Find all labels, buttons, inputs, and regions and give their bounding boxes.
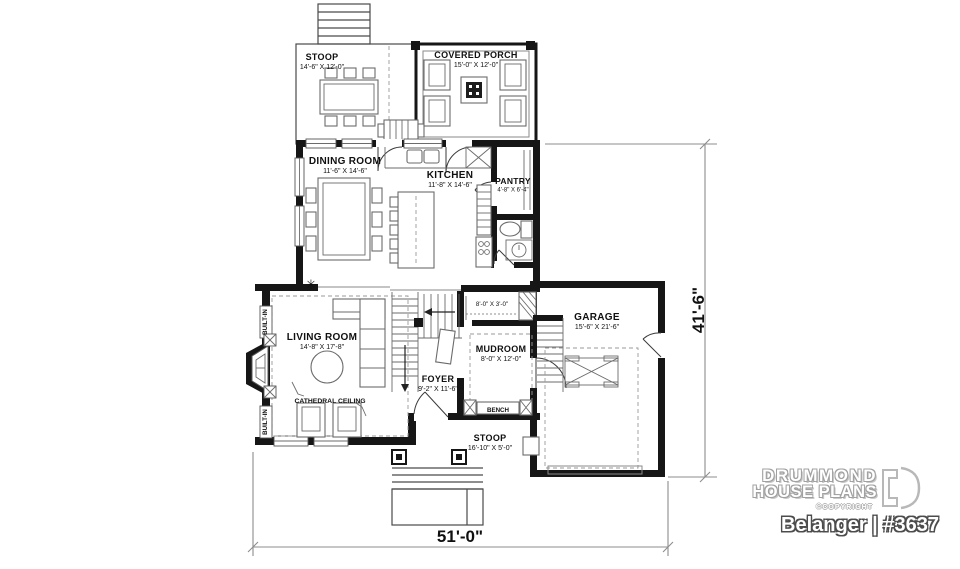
bbq-grill — [378, 120, 424, 141]
staircase-main — [392, 292, 418, 392]
side-door-step — [523, 437, 539, 455]
label-mudroom-dims: 8'-0" X 12'-0" — [481, 356, 522, 363]
stoop-posts — [392, 450, 466, 464]
porch-post — [526, 41, 535, 50]
plan-title: Belanger | #3637 — [762, 514, 958, 537]
label-bench: BENCH — [487, 407, 510, 414]
kitchen-island — [390, 192, 434, 268]
label-pantry: PANTRY — [495, 176, 531, 186]
label-dining-room: DINING ROOM — [309, 156, 381, 167]
label-living-room-dims: 14'-8" X 17'-8" — [300, 344, 345, 351]
stoop-steps — [392, 468, 483, 525]
kitchen-counter — [385, 147, 491, 168]
kitchen-sink — [424, 150, 439, 163]
label-stoop-top-dims: 14'-6" X 12'-0" — [300, 64, 345, 71]
label-covered-porch-dims: 15'-0" X 12'-0" — [454, 62, 499, 69]
label-garage-dims: 15'-6" X 21'-6" — [575, 324, 620, 331]
label-stoop-bottom-dims: 16'-10" X 5'-0" — [468, 445, 513, 452]
round-ottoman — [311, 351, 343, 383]
label-closet-dims: 8'-0" X 3'-0" — [476, 301, 508, 308]
label-foyer-dims: 9'-2" X 11'-6" — [418, 386, 458, 393]
brand-copyright: ©COPYRIGHT — [750, 504, 873, 511]
label-stoop-bottom: STOOP — [474, 433, 507, 443]
label-kitchen-dims: 11'-8" X 14'-6" — [428, 182, 472, 189]
vanity-sink — [506, 240, 532, 260]
console-table — [436, 329, 455, 364]
range-stove — [476, 237, 492, 267]
dimension-width: 51'-0" — [437, 527, 483, 546]
label-built-in-bottom: BUILT-IN — [262, 409, 269, 435]
label-pantry-dims: 4'-8" X 6'-4" — [497, 188, 528, 194]
label-cathedral-ceiling: CATHEDRAL CEILING — [294, 398, 365, 405]
armchairs — [297, 403, 361, 437]
attic-ladder — [565, 356, 618, 387]
kitchen-sink — [407, 150, 422, 163]
dining-table — [306, 178, 382, 260]
fireplace — [246, 334, 276, 398]
label-living-room: LIVING ROOM — [287, 332, 358, 343]
label-dining-room-dims: 11'-6" X 14'-6" — [323, 168, 367, 175]
label-foyer: FOYER — [422, 374, 455, 384]
light-fixture-symbol: ✳ — [306, 277, 317, 292]
back-stoop-steps — [318, 4, 370, 44]
drummond-d-logo-icon — [877, 464, 923, 512]
porch-coffee-table — [461, 77, 487, 103]
brand-name-line2: HOUSE PLANS — [750, 483, 877, 502]
dimension-depth: 41'-6" — [689, 287, 708, 333]
label-covered-porch: COVERED PORCH — [434, 50, 517, 60]
toilet — [500, 221, 532, 238]
refrigerator — [477, 185, 491, 235]
label-stoop-top: STOOP — [306, 52, 339, 62]
label-kitchen: KITCHEN — [427, 170, 474, 181]
label-mudroom: MUDROOM — [476, 344, 527, 354]
label-garage: GARAGE — [574, 312, 620, 323]
mudroom-closet — [466, 296, 518, 320]
outdoor-dining-table — [320, 68, 378, 126]
car-bay-outline — [545, 348, 638, 468]
floor-plan-page: STOOP 14'-6" X 12'-0" COVERED PORCH 15'-… — [0, 0, 960, 569]
porch-post — [411, 41, 420, 50]
label-built-in-top: BUILT-IN — [262, 309, 269, 335]
